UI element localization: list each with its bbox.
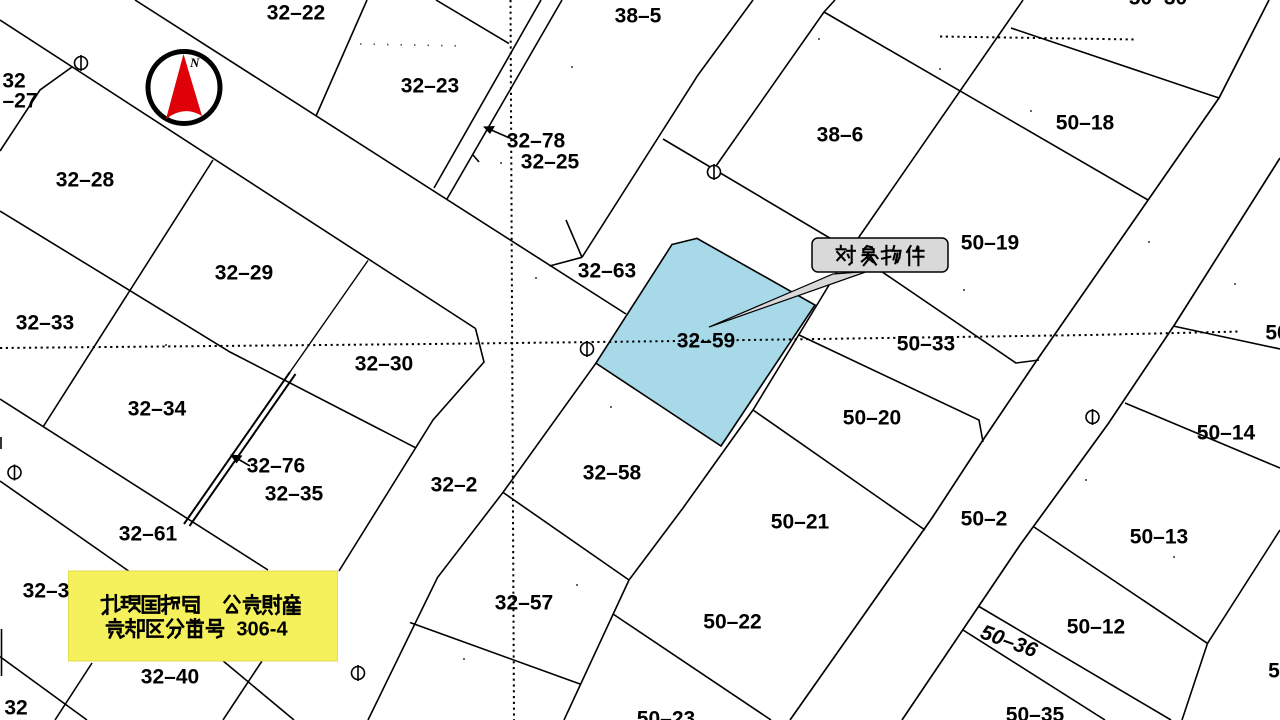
- svg-text:50–20: 50–20: [843, 407, 901, 430]
- svg-text:38–5: 38–5: [615, 5, 662, 28]
- svg-text:32–33: 32–33: [16, 312, 74, 335]
- svg-text:–27: –27: [2, 90, 37, 113]
- svg-text:306-4: 306-4: [236, 619, 288, 641]
- svg-text:50–30: 50–30: [1129, 0, 1187, 10]
- svg-text:32–25: 32–25: [521, 151, 580, 174]
- svg-text:50–13: 50–13: [1130, 526, 1188, 549]
- svg-text:50–23: 50–23: [637, 708, 695, 720]
- svg-text:50–33: 50–33: [897, 333, 955, 356]
- svg-text:5: 5: [1268, 660, 1280, 683]
- svg-text:50–35: 50–35: [1006, 704, 1065, 720]
- svg-text:32–78: 32–78: [507, 130, 566, 153]
- svg-text:32–61: 32–61: [119, 523, 178, 546]
- svg-text:32–40: 32–40: [141, 666, 199, 689]
- svg-text:50–19: 50–19: [961, 232, 1019, 255]
- svg-text:32–28: 32–28: [56, 169, 115, 192]
- svg-text:32–22: 32–22: [267, 2, 325, 25]
- svg-text:50–18: 50–18: [1056, 112, 1115, 135]
- svg-text:50–21: 50–21: [771, 511, 830, 534]
- svg-text:32: 32: [4, 697, 27, 720]
- svg-text:50–22: 50–22: [703, 611, 761, 634]
- svg-text:32–3: 32–3: [23, 580, 70, 603]
- svg-text:50: 50: [1265, 322, 1280, 345]
- svg-text:38–6: 38–6: [817, 124, 864, 147]
- svg-text:32–30: 32–30: [355, 353, 413, 376]
- svg-text:32–35: 32–35: [265, 483, 324, 506]
- svg-text:32–76: 32–76: [247, 455, 305, 478]
- svg-text:50–2: 50–2: [961, 508, 1008, 531]
- svg-text:32–23: 32–23: [401, 75, 459, 98]
- svg-text:32–29: 32–29: [215, 262, 273, 285]
- svg-text:50–12: 50–12: [1067, 616, 1125, 639]
- svg-text:50–14: 50–14: [1197, 422, 1256, 445]
- svg-text:32–58: 32–58: [583, 462, 642, 485]
- svg-text:N: N: [189, 55, 200, 70]
- svg-text:32–2: 32–2: [431, 474, 478, 497]
- svg-text:32–59: 32–59: [677, 330, 735, 353]
- svg-text:32–57: 32–57: [495, 592, 553, 615]
- svg-text:32–63: 32–63: [578, 260, 636, 283]
- svg-text:32–34: 32–34: [128, 398, 187, 421]
